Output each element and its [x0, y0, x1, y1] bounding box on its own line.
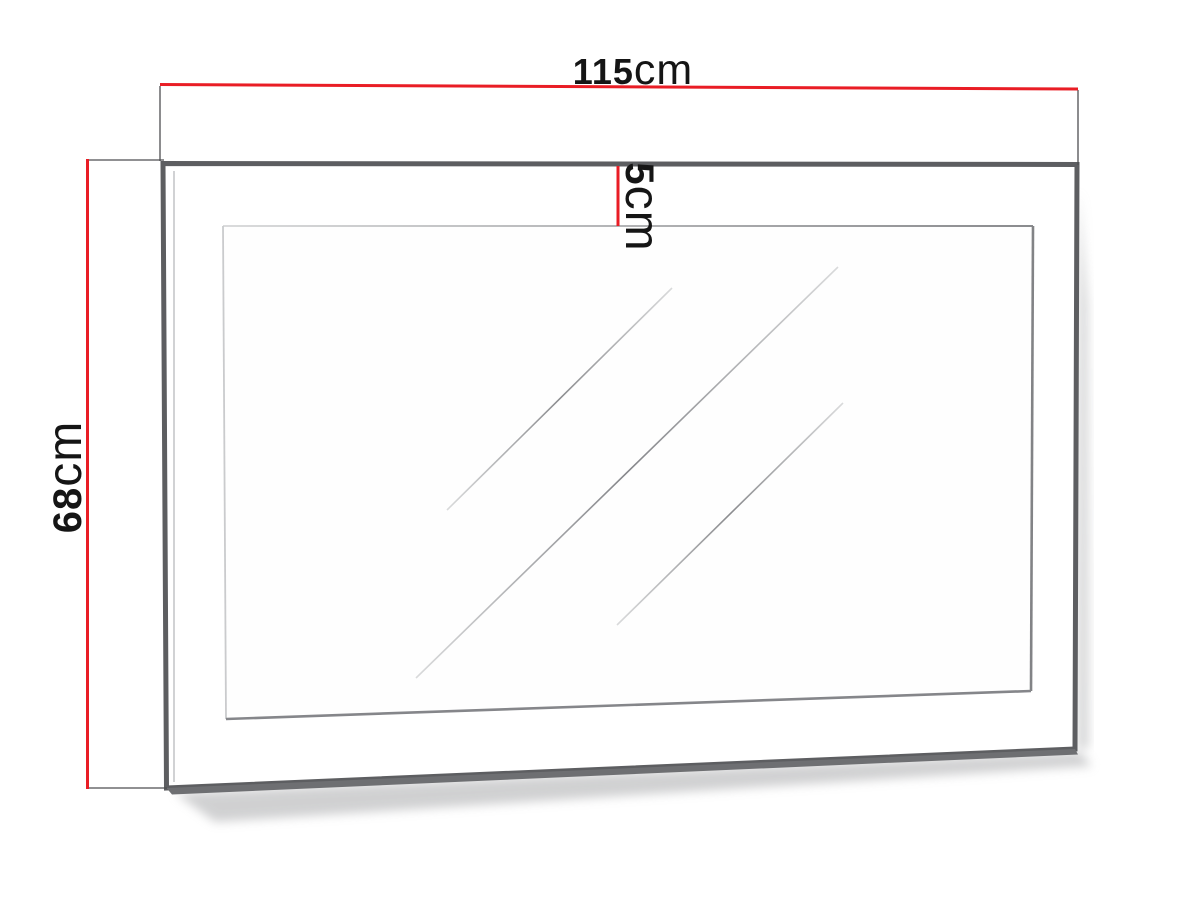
width-dimension-line [160, 85, 1078, 90]
dimension-drawing-canvas [0, 0, 1200, 900]
mirror-dimension-diagram: 115cm 68cm 5cm [0, 0, 1200, 900]
